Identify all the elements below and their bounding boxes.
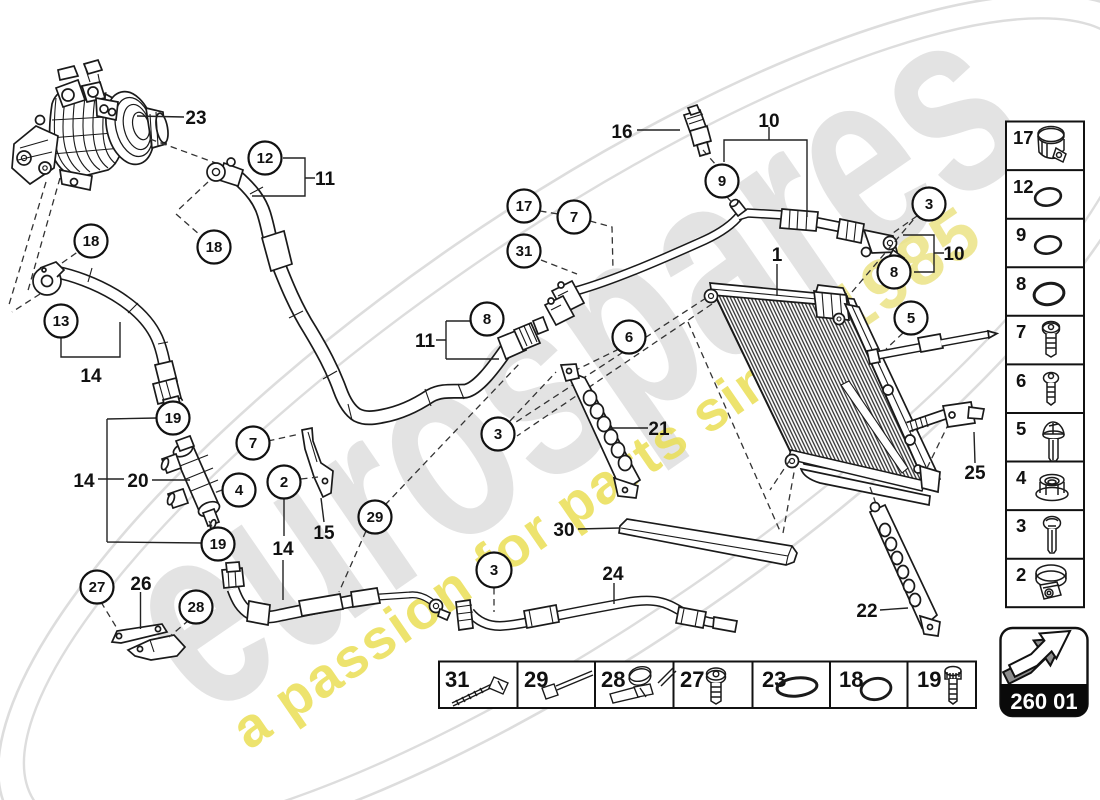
svg-text:7: 7 xyxy=(570,209,578,226)
svg-text:18: 18 xyxy=(206,239,223,256)
svg-text:3: 3 xyxy=(925,196,933,213)
svg-text:7: 7 xyxy=(1016,321,1026,342)
svg-text:31: 31 xyxy=(445,667,469,692)
svg-text:4: 4 xyxy=(1016,467,1027,488)
svg-text:3: 3 xyxy=(1016,515,1026,536)
svg-text:9: 9 xyxy=(1016,224,1026,245)
svg-text:28: 28 xyxy=(188,599,205,616)
svg-text:19: 19 xyxy=(917,667,941,692)
svg-text:25: 25 xyxy=(964,463,986,484)
svg-text:11: 11 xyxy=(415,331,436,352)
svg-text:5: 5 xyxy=(1016,418,1026,439)
svg-text:1: 1 xyxy=(772,245,783,266)
svg-text:15: 15 xyxy=(313,523,335,544)
svg-text:6: 6 xyxy=(1016,370,1026,391)
svg-text:2: 2 xyxy=(1016,564,1026,585)
svg-text:7: 7 xyxy=(249,435,257,452)
svg-text:10: 10 xyxy=(943,244,964,265)
svg-text:10: 10 xyxy=(758,111,779,132)
svg-text:24: 24 xyxy=(602,564,624,585)
svg-text:9: 9 xyxy=(718,173,726,190)
svg-text:14: 14 xyxy=(80,366,102,387)
svg-text:4: 4 xyxy=(235,482,244,499)
svg-text:16: 16 xyxy=(611,122,632,143)
svg-text:14: 14 xyxy=(73,471,95,492)
svg-text:29: 29 xyxy=(367,509,384,526)
svg-text:23: 23 xyxy=(762,667,786,692)
svg-text:23: 23 xyxy=(185,108,206,129)
svg-text:19: 19 xyxy=(210,536,227,553)
svg-text:8: 8 xyxy=(483,311,491,328)
svg-text:17: 17 xyxy=(516,198,533,215)
svg-text:31: 31 xyxy=(516,243,533,260)
svg-text:26: 26 xyxy=(130,574,151,595)
svg-text:28: 28 xyxy=(601,667,625,692)
svg-text:20: 20 xyxy=(127,471,148,492)
svg-text:19: 19 xyxy=(165,410,182,427)
svg-text:8: 8 xyxy=(1016,273,1026,294)
svg-text:27: 27 xyxy=(89,579,106,596)
svg-text:6: 6 xyxy=(625,329,633,346)
svg-text:14: 14 xyxy=(272,539,294,560)
svg-text:12: 12 xyxy=(1013,176,1034,197)
svg-text:5: 5 xyxy=(907,310,915,327)
svg-text:3: 3 xyxy=(490,562,498,579)
svg-text:eurospares: eurospares xyxy=(69,0,1072,769)
svg-text:22: 22 xyxy=(856,601,877,622)
svg-text:13: 13 xyxy=(53,313,70,330)
svg-text:17: 17 xyxy=(1013,127,1034,148)
svg-text:8: 8 xyxy=(890,264,898,281)
svg-text:30: 30 xyxy=(553,520,574,541)
svg-text:260 01: 260 01 xyxy=(1010,689,1077,714)
svg-text:21: 21 xyxy=(648,419,670,440)
svg-text:3: 3 xyxy=(494,426,502,443)
svg-text:18: 18 xyxy=(839,667,863,692)
svg-text:11: 11 xyxy=(315,169,336,190)
svg-text:12: 12 xyxy=(257,150,274,167)
svg-text:2: 2 xyxy=(280,474,288,491)
svg-text:27: 27 xyxy=(680,667,704,692)
svg-text:18: 18 xyxy=(83,233,100,250)
